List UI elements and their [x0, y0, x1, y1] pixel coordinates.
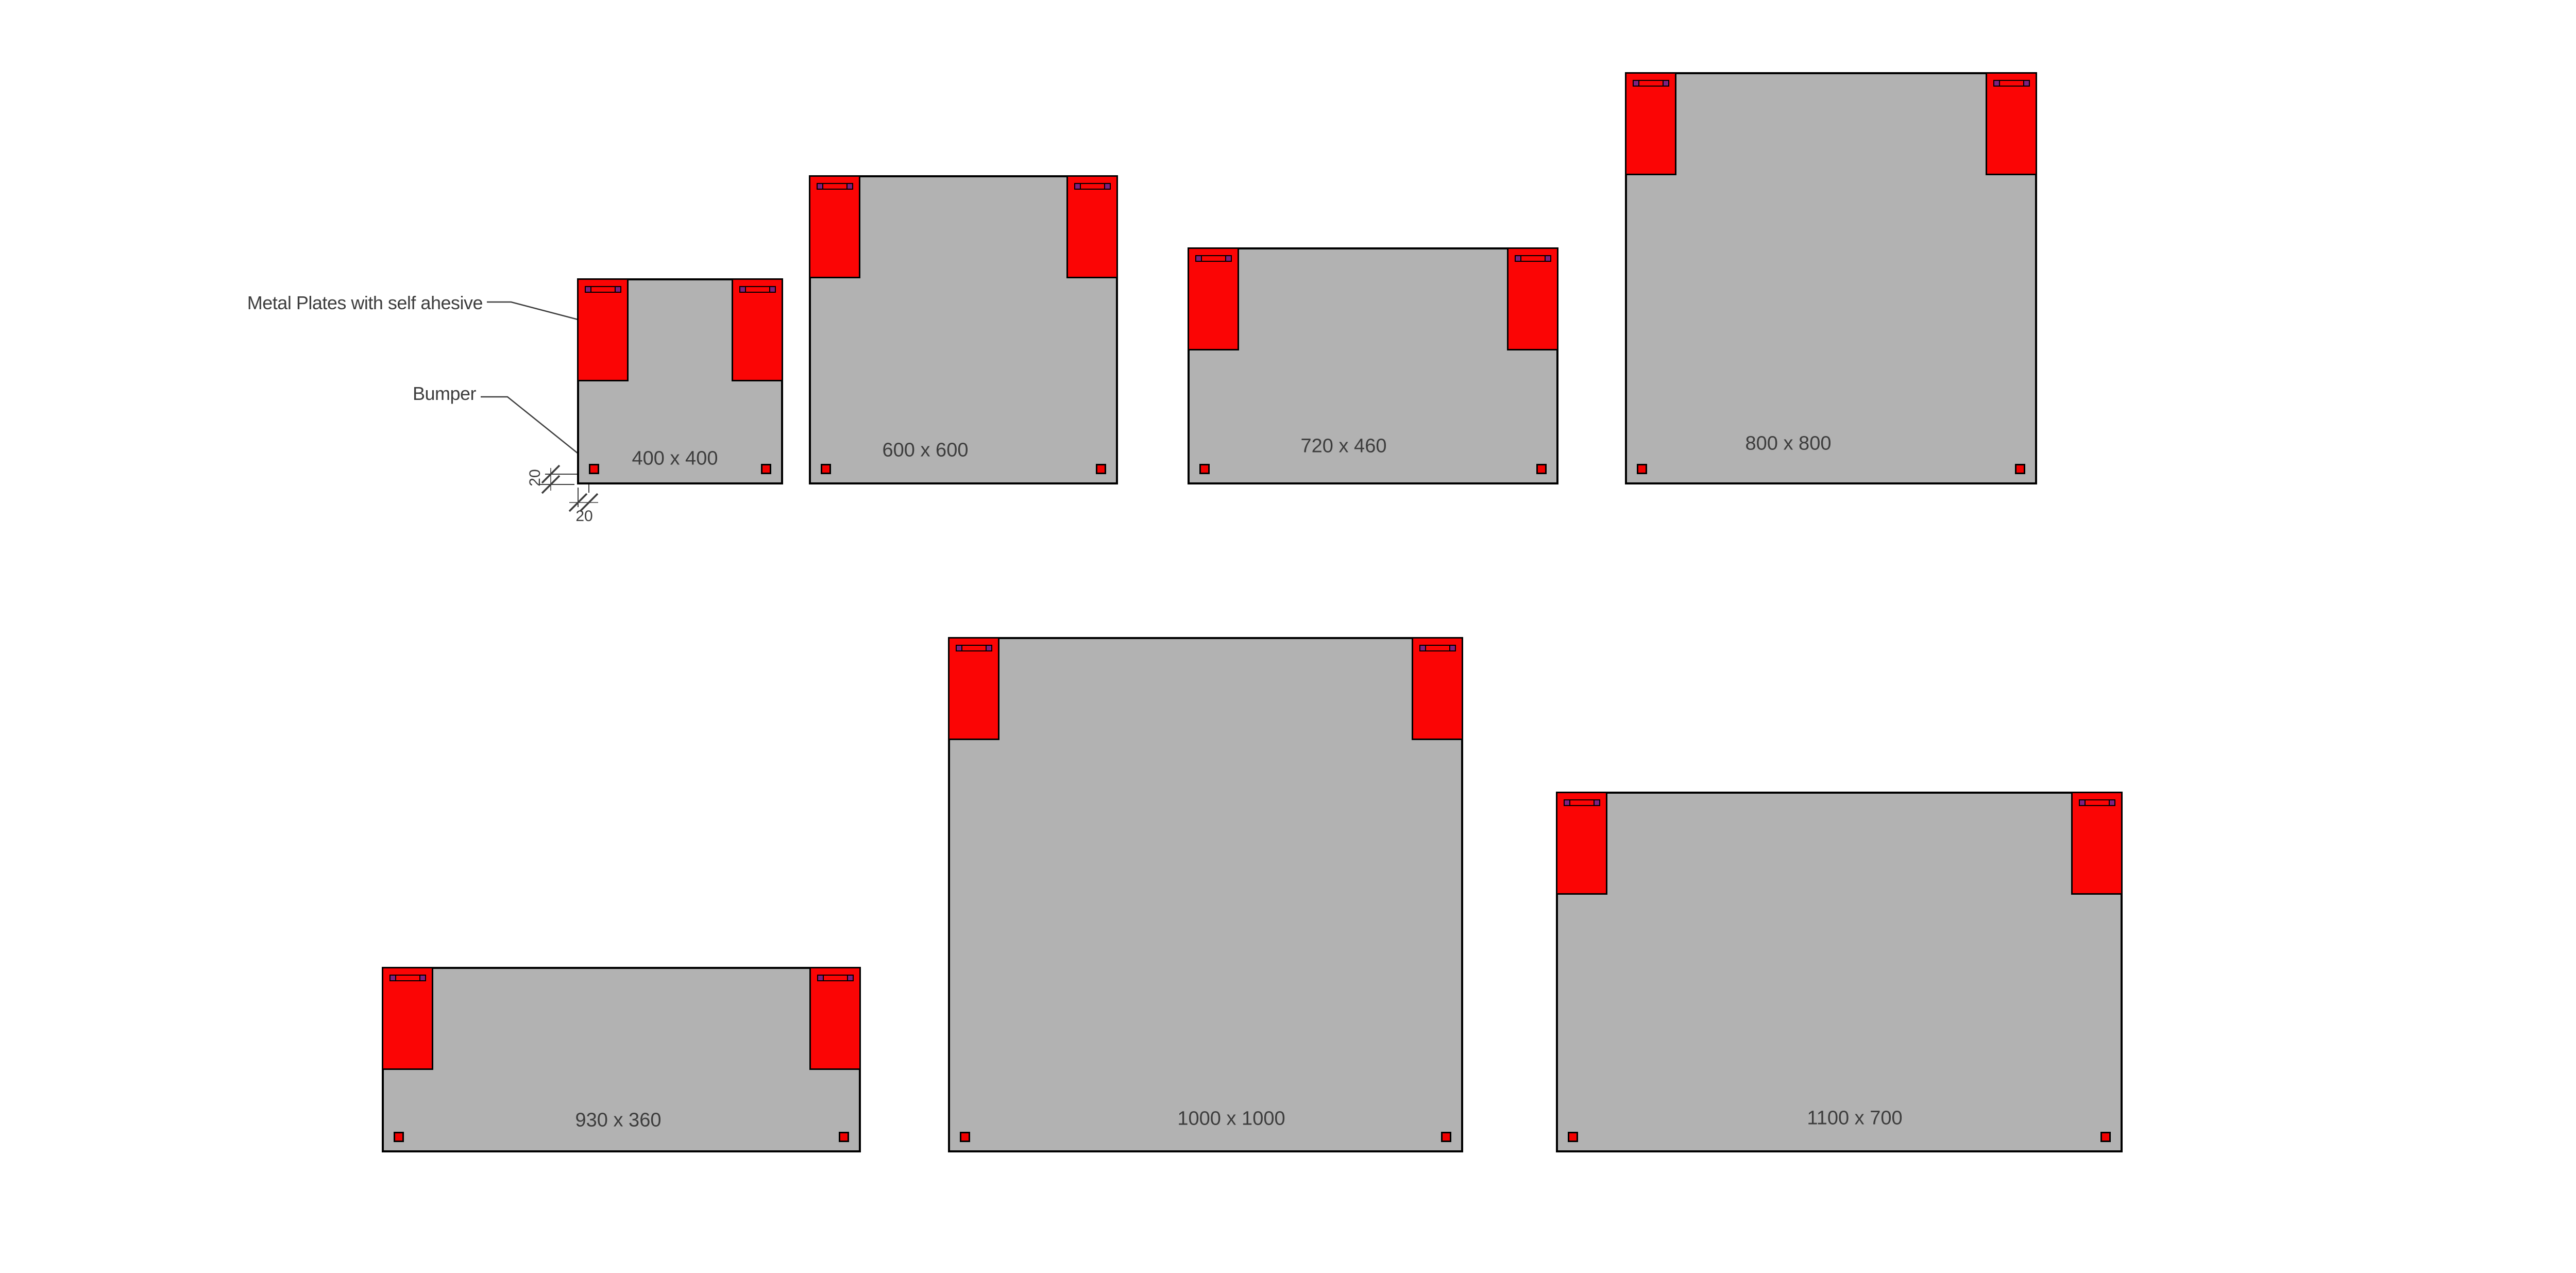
slot-end-hole	[956, 645, 962, 651]
mounting-slot	[1633, 80, 1669, 87]
panel-size-label: 600 x 600	[883, 440, 969, 462]
slot-end-hole	[1104, 183, 1111, 190]
metal-plate	[732, 278, 783, 381]
slot-end-hole	[1449, 645, 1456, 651]
metal-plate	[577, 278, 629, 381]
bumper	[960, 1132, 970, 1142]
panel-size-label: 720 x 460	[1301, 435, 1387, 458]
bumper	[839, 1132, 849, 1142]
slot-end-hole	[1419, 645, 1426, 651]
mounting-slot	[1993, 80, 2030, 87]
metal-plate	[1556, 792, 1607, 895]
slot-end-hole	[817, 183, 823, 190]
panel-930x360: 930 x 360	[382, 967, 861, 1152]
metal-plate	[382, 967, 433, 1070]
slot-end-hole	[585, 286, 591, 293]
panel-1100x700: 1100 x 700	[1556, 792, 2123, 1152]
mounting-slot	[817, 183, 853, 190]
panel-size-label: 1000 x 1000	[1177, 1108, 1285, 1130]
slot-end-hole	[1545, 255, 1551, 262]
slot-end-hole	[389, 975, 396, 981]
slot-end-hole	[2023, 80, 2030, 87]
bumper	[589, 464, 599, 474]
bumper-offset-bottom-dim: 20	[527, 469, 544, 486]
slot-end-hole	[1515, 255, 1521, 262]
bumper	[761, 464, 771, 474]
bumper	[2100, 1132, 2111, 1142]
panel-size-label: 930 x 360	[575, 1110, 662, 1132]
slot-end-hole	[847, 975, 854, 981]
panel-1000x1000: 1000 x 1000	[948, 637, 1463, 1152]
slot-end-hole	[1564, 799, 1570, 806]
dim-tick	[542, 465, 560, 483]
slot-end-hole	[1074, 183, 1081, 190]
metal-plate	[809, 175, 860, 278]
slot-end-hole	[2109, 799, 2115, 806]
bumper-label: Bumper	[413, 383, 476, 405]
bumper	[1637, 464, 1647, 474]
drawing-canvas: 400 x 400 600 x 600 720 x 460 800 x 800 …	[0, 0, 2576, 1273]
bumper-offset-left-dim: 20	[575, 508, 592, 525]
panel-720x460: 720 x 460	[1188, 247, 1558, 484]
mounting-slot	[817, 975, 854, 981]
mounting-slot	[585, 286, 621, 293]
panel-size-label: 400 x 400	[632, 448, 718, 470]
bumper	[821, 464, 831, 474]
panel-size-label: 1100 x 700	[1807, 1108, 1902, 1130]
slot-end-hole	[1663, 80, 1669, 87]
bumper	[2015, 464, 2025, 474]
metal-plate	[1625, 72, 1676, 175]
mounting-slot	[739, 286, 776, 293]
mounting-slot	[1195, 255, 1232, 262]
metal-plate	[1066, 175, 1118, 278]
metal-plate	[2071, 792, 2123, 895]
metal-plate	[1986, 72, 2037, 175]
mounting-slot	[389, 975, 426, 981]
metal-plates-label: Metal Plates with self ahesive	[247, 292, 483, 314]
slot-end-hole	[419, 975, 426, 981]
panel-400x400: 400 x 400	[577, 278, 783, 484]
slot-end-hole	[1594, 799, 1600, 806]
mounting-slot	[1074, 183, 1111, 190]
slot-end-hole	[846, 183, 853, 190]
bumper	[1199, 464, 1210, 474]
slot-end-hole	[1633, 80, 1639, 87]
slot-end-hole	[2079, 799, 2086, 806]
slot-end-hole	[1225, 255, 1232, 262]
bumper	[1096, 464, 1106, 474]
metal-plate	[1188, 247, 1239, 350]
slot-end-hole	[739, 286, 746, 293]
bumper	[1568, 1132, 1578, 1142]
panel-600x600: 600 x 600	[809, 175, 1118, 484]
slot-end-hole	[615, 286, 621, 293]
metal-plate	[1507, 247, 1558, 350]
slot-end-hole	[1195, 255, 1202, 262]
bumper	[1441, 1132, 1451, 1142]
slot-end-hole	[1993, 80, 2000, 87]
mounting-slot	[1564, 799, 1600, 806]
panel-size-label: 800 x 800	[1745, 433, 1832, 455]
slot-end-hole	[986, 645, 992, 651]
metal-plate	[948, 637, 999, 740]
mounting-slot	[2079, 799, 2115, 806]
mounting-slot	[956, 645, 992, 651]
metal-plate	[809, 967, 861, 1070]
panel-800x800: 800 x 800	[1625, 72, 2037, 484]
mounting-slot	[1419, 645, 1456, 651]
slot-end-hole	[817, 975, 824, 981]
bumper	[394, 1132, 404, 1142]
dim-tick	[542, 476, 560, 493]
mounting-slot	[1515, 255, 1551, 262]
slot-end-hole	[769, 286, 776, 293]
metal-plate	[1412, 637, 1463, 740]
bumper	[1536, 464, 1547, 474]
